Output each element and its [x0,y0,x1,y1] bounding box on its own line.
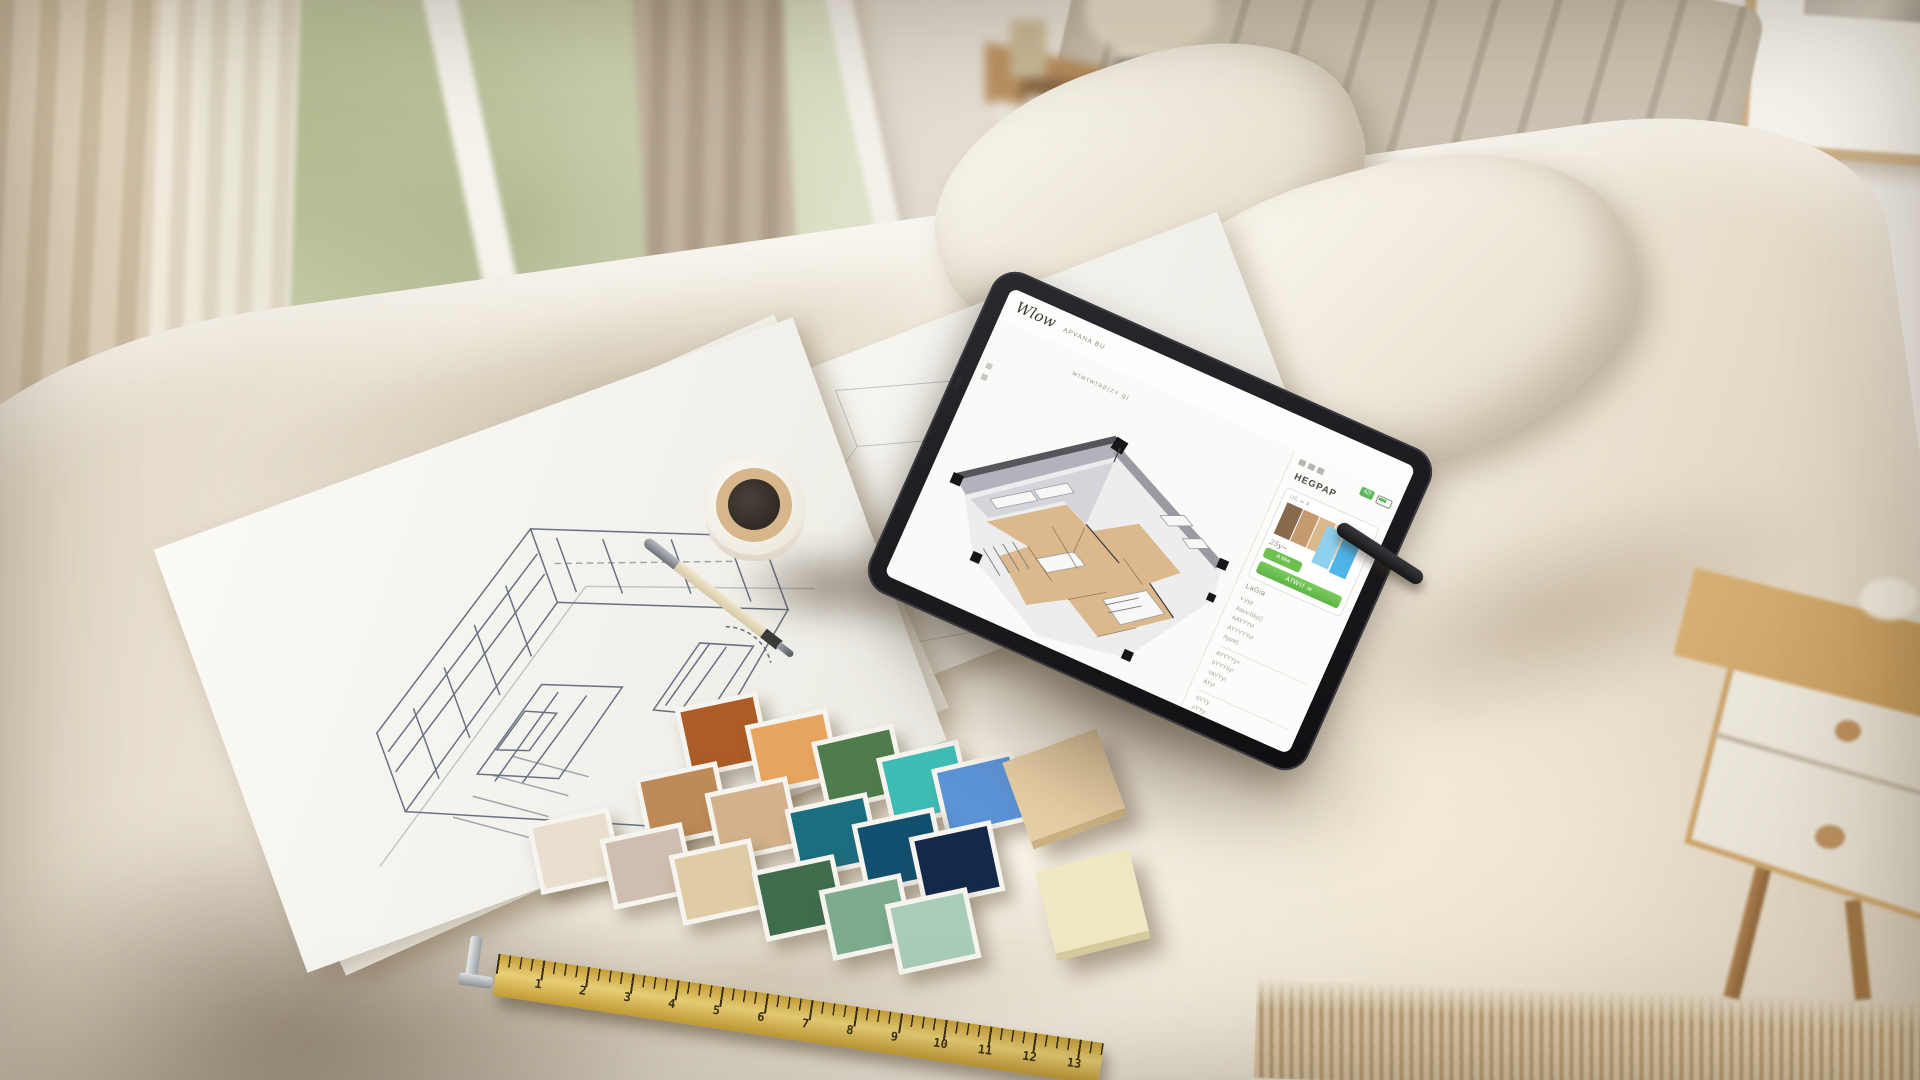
battery-icon [1375,495,1393,510]
wifi-icon [1298,459,1307,467]
app-logo: Wlow [1013,298,1059,332]
nightstand-right [1650,570,1920,1000]
drawer-knob [1815,825,1845,849]
app-menu[interactable]: apvana bu [1062,327,1106,352]
tape-hole [728,479,780,530]
framed-sketch [1804,0,1920,25]
masking-tape-roll [703,455,807,591]
tablet-side-button [953,376,963,391]
ruler-metal-hook [457,935,504,992]
nightstand-leg [1723,860,1772,1000]
bedroom-scene: 1 2 3 4 5 6 7 8 9 10 11 12 13 Wlow apvan… [0,0,1920,1080]
status-badge: 42i [1359,486,1375,500]
candle [1010,20,1046,78]
nightstand-leg [1845,899,1871,1000]
drawer-knob [1835,720,1861,742]
sync-icon [1307,463,1316,471]
cup [1860,578,1918,620]
bell-icon [1316,467,1325,475]
